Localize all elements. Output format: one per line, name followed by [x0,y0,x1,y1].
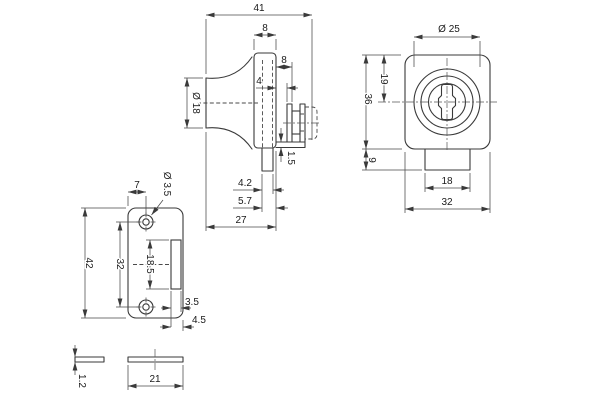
knob-top-curve [206,57,252,78]
dim-slot-width-label: 3.5 [185,297,199,308]
dim-overall-width-label: 41 [253,3,265,14]
dim-plate-width-label: 21 [149,374,161,385]
dim-bolt-diameter-label: 4.2 [238,178,252,189]
edge-view: 1.2 21 [75,345,183,390]
side-view: 41 8 8 4 Ø 18 1.5 4.2 5.7 27 [184,3,321,231]
centerlines [378,58,497,152]
bolt-slot [171,240,181,289]
clamp-pad [292,111,300,134]
dim-cylinder-diameter-label: Ø 25 [438,24,460,35]
dim-plate-thickness-label: 1.2 [76,374,87,388]
edge-bar-right [128,357,183,362]
dim-body-height-label: 36 [362,93,373,105]
lock-technical-drawing: 41 8 8 4 Ø 18 1.5 4.2 5.7 27 [0,0,600,400]
screw-shank-hidden [300,114,305,131]
technical-drawing-page: 41 8 8 4 Ø 18 1.5 4.2 5.7 27 [0,0,600,400]
latch-bolt [262,148,273,171]
dim-tab-width-label: 18 [441,176,453,187]
dim-tab-height-label: 9 [366,157,377,163]
dim-slot-length-label: 18.5 [144,254,155,274]
dim-plate-height-label: 42 [83,257,94,269]
dim-knob-diameter-label: Ø 18 [190,92,201,114]
dim-hole-offset-label: 7 [134,180,140,191]
dim-hole-diameter-label: Ø 3.5 [161,172,172,197]
front-view: Ø 25 19 36 9 18 32 [362,24,497,213]
dim-body-thickness-label: 8 [262,23,268,34]
edge-bar-left [75,357,104,362]
dim-bolt-offset-label: 5.7 [238,196,252,207]
strike-plate-view: 7 Ø 3.5 42 32 18.5 3.5 4.5 [81,172,206,331]
screw-hole-top-inner [143,219,149,225]
knob-bottom-curve [206,128,252,149]
dim-glass-gap-label: 4 [256,76,262,87]
clamp-bracket [276,104,305,148]
dim-body-width-label: 32 [441,197,453,208]
dim-depth-label: 27 [235,215,247,226]
dim-slot-edge-label: 4.5 [192,315,206,326]
dim-cylinder-center-label: 19 [378,73,389,85]
hidden-bolt-channel [263,60,273,148]
mounting-tab [425,149,470,170]
dim-hole-span-label: 32 [114,258,125,270]
screw-hole-bottom-inner [143,304,149,310]
dim-pad-thickness-label: 1.5 [285,151,296,165]
dim-clamp-width-label: 8 [281,55,287,66]
